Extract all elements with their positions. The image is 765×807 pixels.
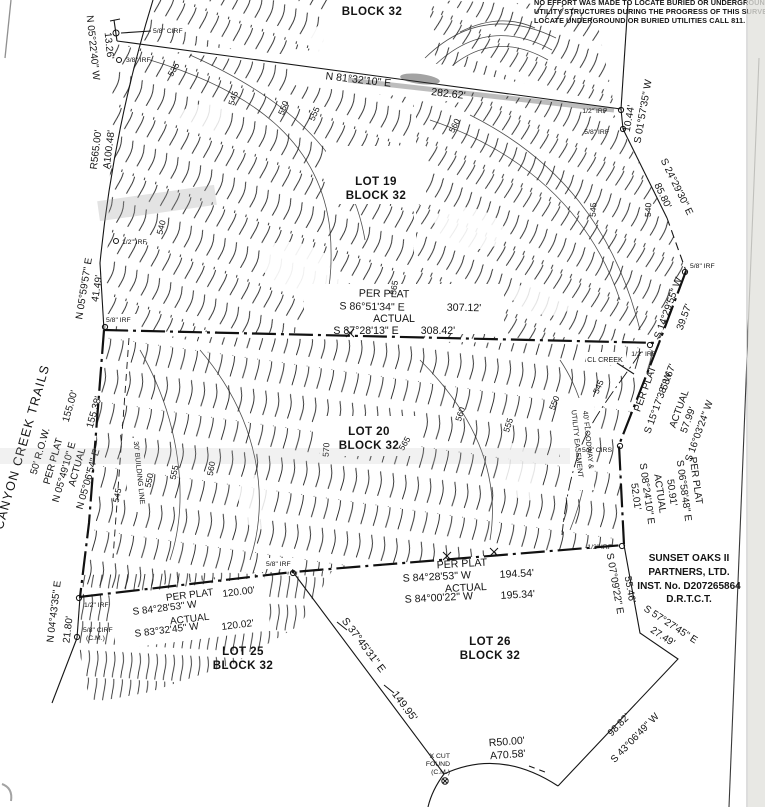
marker-ne1-label: 1/2" IRF bbox=[582, 108, 607, 115]
owner-line2: PARTNERS, LTD. bbox=[648, 567, 730, 578]
top-block-label: BLOCK 32 bbox=[342, 5, 403, 18]
xcut-label-line1: X CUT bbox=[430, 753, 450, 760]
lot25-name: LOT 25 bbox=[222, 645, 264, 658]
marker-west-irf-label: 1/2" IRF bbox=[122, 239, 147, 246]
lot26-block: BLOCK 32 bbox=[460, 649, 521, 662]
marker-nw-irf-label: 3/8" IRF bbox=[126, 57, 151, 64]
marker-creek-irf-label: 1/2" IRF bbox=[631, 351, 656, 358]
n20-per-plat-bearing: S 86°51'34" E bbox=[339, 300, 405, 313]
s1-per-plat-distance: 194.54' bbox=[499, 567, 534, 581]
xcut-label-line3: (C.M.) bbox=[431, 769, 450, 776]
marker-sw-irf-label: 1/2" IRF bbox=[84, 602, 109, 609]
lot26-name: LOT 26 bbox=[469, 635, 511, 648]
marker-ne2-label: 5/8" IRF bbox=[584, 129, 609, 136]
marker-se-irf-label: 1/2" IRF bbox=[587, 544, 612, 551]
lot19-name: LOT 19 bbox=[355, 175, 397, 188]
contour-label-540-b: 540 bbox=[643, 202, 654, 217]
utility-note-line1: NO EFFORT WAS MADE TO LOCATE BURIED OR U… bbox=[534, 0, 765, 7]
plat-drawing: NO EFFORT WAS MADE TO LOCATE BURIED OR U… bbox=[0, 0, 765, 807]
south-curve-radius: R50.00' bbox=[488, 735, 525, 749]
s1-actual-distance: 195.34' bbox=[500, 588, 535, 602]
owner-line3: INST. No. D207265864 bbox=[637, 581, 741, 592]
utility-note-line3: LOCATE UNDERGROUND OR BURIED UTILITIES C… bbox=[534, 16, 745, 25]
creek-label: CL CREEK bbox=[587, 355, 623, 364]
owner-line1: SUNSET OAKS II bbox=[649, 553, 730, 564]
contour-label-565-b: 565 bbox=[388, 280, 400, 296]
survey-plat-page: NO EFFORT WAS MADE TO LOCATE BURIED OR U… bbox=[0, 0, 765, 807]
lot25-block: BLOCK 32 bbox=[213, 659, 274, 672]
n20-per-plat-label: PER PLAT bbox=[359, 288, 410, 301]
contour-label-545-b: 545 bbox=[588, 202, 599, 217]
n20-per-plat-distance: 307.12' bbox=[447, 302, 482, 315]
marker-sw-cirf-cm-label: (C.M.) bbox=[86, 635, 105, 642]
marker-sw-cirf-label: 5/8" CIRF bbox=[83, 627, 113, 634]
n20-actual-distance: 308.42' bbox=[421, 325, 455, 337]
marker-south-irf-label: 5/8" IRF bbox=[266, 561, 291, 568]
n20-actual-label: ACTUAL bbox=[373, 313, 415, 325]
marker-west-corner-label: 5/8" IRF bbox=[106, 317, 131, 324]
south-curve-arc: A70.58' bbox=[490, 748, 526, 762]
marker-east-irf-label: 5/8" IRF bbox=[690, 263, 715, 270]
owner-line4: D.R.T.C.T. bbox=[666, 594, 712, 605]
n20-actual-bearing: S 87°28'13" E bbox=[333, 325, 398, 337]
marker-nw-cirf-label: 5/8" CIRF bbox=[153, 28, 183, 35]
utility-note-line2: UTILITY STRUCTURES DURING THE PROGRESS O… bbox=[534, 7, 765, 16]
xcut-label-line2: FOUND bbox=[426, 761, 450, 768]
marker-east-cirs-label: 5/8" CIRS bbox=[582, 447, 612, 454]
lot19-block: BLOCK 32 bbox=[346, 189, 407, 202]
lot20-name: LOT 20 bbox=[348, 425, 390, 438]
